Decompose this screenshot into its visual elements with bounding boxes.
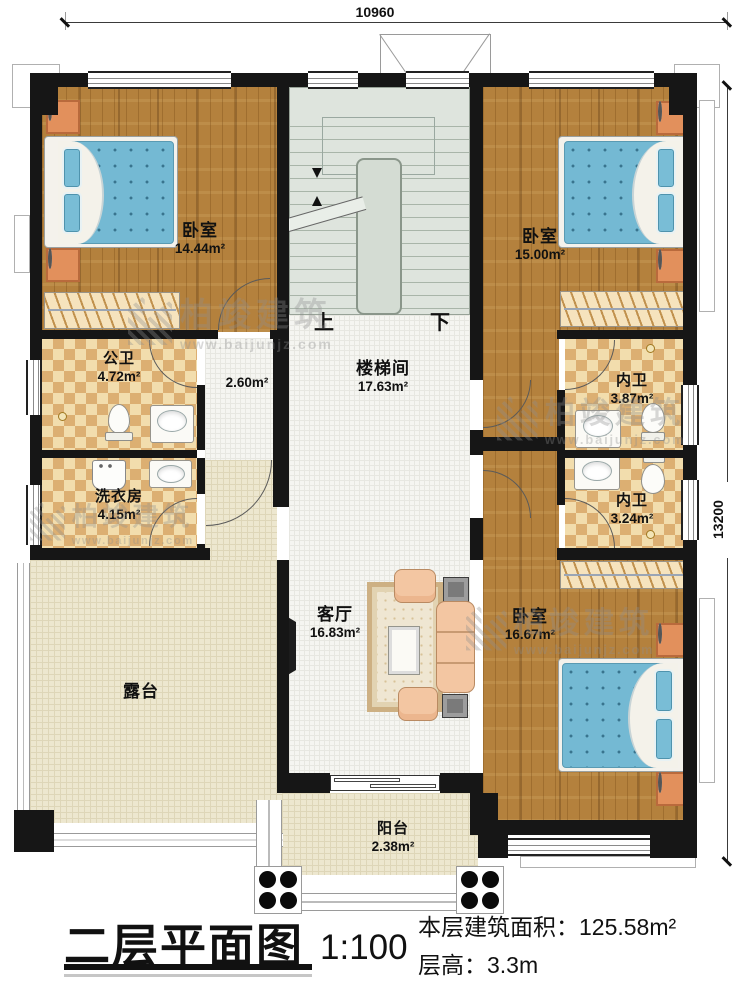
room-label-public-bath: 公卫 4.72m²: [59, 350, 179, 386]
lamp-icon: [658, 772, 662, 793]
pillow: [654, 669, 674, 713]
room-name: 公卫: [59, 350, 179, 369]
sink-vanity: [574, 456, 620, 490]
dimension-line-top: [65, 22, 727, 23]
dimension-line-right: [727, 86, 728, 862]
room-label-bedroom-top-right: 卧室 15.00m²: [480, 226, 600, 264]
floor-height-info: 层高：3.3m: [418, 946, 538, 980]
column-dot: [259, 871, 276, 888]
wall-segment: [30, 330, 218, 339]
floor-area-info: 本层建筑面积：125.58m²: [418, 908, 676, 942]
room-area: 2.38m²: [333, 839, 453, 856]
washing-machine: [92, 460, 126, 490]
wardrobe: [560, 561, 688, 589]
dimension-height-label: 13200: [710, 482, 730, 558]
toilet: [641, 464, 665, 494]
wall-corner: [650, 820, 697, 858]
floor-height-label: 层高：: [418, 952, 487, 978]
column-dot: [280, 892, 297, 909]
wall-corner: [478, 820, 508, 858]
room-label-balcony: 阳台 2.38m²: [333, 820, 453, 856]
room-name: 卧室: [480, 226, 600, 247]
wall-segment: [683, 540, 697, 825]
window: [308, 71, 358, 89]
toilet: [108, 404, 130, 434]
wall-segment: [231, 73, 308, 87]
stair-direction-arrow: [312, 168, 322, 178]
room-name: 露台: [81, 681, 201, 702]
plan-scale: 1:100: [320, 928, 408, 968]
toilet-tank: [105, 432, 133, 441]
room-label-hall: 2.60m²: [202, 375, 292, 392]
title-underline: [64, 964, 312, 970]
terrace-railing: [17, 563, 30, 825]
room-area: 15.00m²: [480, 247, 600, 264]
wall-segment: [197, 458, 205, 494]
eave-ledge: [699, 100, 715, 312]
eave-ledge: [14, 215, 30, 273]
sink-basin: [157, 465, 185, 483]
wall-segment: [557, 330, 697, 339]
wall-segment: [358, 73, 406, 87]
title-underline-shadow: [64, 974, 312, 977]
room-label-stairwell: 楼梯间 17.63m²: [323, 358, 443, 396]
room-label-bedroom-top-left: 卧室 14.44m²: [140, 220, 260, 258]
sink-vanity: [150, 405, 194, 443]
side-table: [442, 694, 468, 718]
eave-ledge: [699, 598, 715, 783]
window: [508, 838, 650, 856]
room-label-ensuite-bottom: 内卫 3.24m²: [577, 492, 687, 528]
side-table: [443, 577, 469, 602]
wall-segment: [440, 773, 483, 793]
wardrobe: [44, 292, 180, 329]
room-name: 楼梯间: [323, 358, 443, 379]
room-area: 16.67m²: [470, 627, 590, 644]
pillow: [62, 192, 82, 234]
floor-drain-icon: [58, 412, 67, 421]
terrace-column: [14, 810, 54, 852]
pillow: [62, 147, 82, 189]
room-label-laundry: 洗衣房 4.15m²: [59, 488, 179, 524]
stair-down-label: 下: [430, 306, 450, 335]
wall-segment: [557, 548, 697, 560]
armchair: [398, 687, 438, 721]
toilet-tank: [641, 432, 665, 441]
sink-vanity: [149, 460, 192, 488]
armchair: [394, 569, 436, 603]
stair-up-label: 上: [314, 306, 334, 335]
stair-direction-arrow: [312, 196, 322, 206]
room-name: 卧室: [470, 606, 590, 627]
wall-segment: [30, 450, 197, 458]
floor-area-value: 125.58m²: [579, 914, 676, 940]
wall-segment: [277, 773, 330, 793]
sliding-door-panel: [334, 778, 400, 782]
wall-segment: [470, 437, 559, 451]
column-dot: [461, 892, 478, 909]
room-area: 3.24m²: [577, 511, 687, 528]
room-area: 3.87m²: [577, 391, 687, 408]
column-dot: [482, 871, 499, 888]
wardrobe: [560, 291, 688, 327]
floor-plan-page: { "dimensions": { "width_mm": "10960", "…: [0, 0, 750, 989]
sink-basin: [157, 410, 187, 432]
wall-segment: [557, 390, 565, 505]
room-area: 2.60m²: [202, 375, 292, 392]
floor-area-label: 本层建筑面积：: [418, 914, 579, 940]
stair-landing: [290, 88, 469, 116]
lamp-icon: [658, 623, 662, 644]
balcony-column: [254, 866, 302, 914]
room-name: 阳台: [333, 820, 453, 839]
wall-segment: [273, 332, 289, 507]
wall-segment: [277, 86, 289, 339]
wall-segment: [30, 548, 210, 560]
room-name: 内卫: [577, 492, 687, 511]
window: [88, 71, 231, 89]
floor-height-value: 3.3m: [487, 952, 538, 978]
room-area: 4.15m²: [59, 507, 179, 524]
column-dot: [482, 892, 499, 909]
room-area: 17.63m²: [323, 379, 443, 396]
lamp-icon: [658, 101, 662, 122]
column-dot: [461, 871, 478, 888]
sink-basin: [583, 415, 613, 437]
column-dot: [280, 871, 297, 888]
window: [529, 71, 654, 89]
wall-segment: [470, 518, 483, 560]
sink-basin: [582, 461, 612, 481]
wall-segment: [197, 385, 205, 450]
room-label-bedroom-bottom-right: 卧室 16.67m²: [470, 606, 590, 644]
room-name: 内卫: [577, 372, 687, 391]
room-area: 16.83m²: [275, 625, 395, 642]
room-label-ensuite-top: 内卫 3.87m²: [577, 372, 687, 408]
nightstand: [46, 248, 80, 282]
sink-vanity: [575, 410, 621, 448]
window: [26, 360, 42, 415]
pillow: [654, 717, 674, 761]
lamp-icon: [658, 249, 662, 270]
room-area: 14.44m²: [140, 241, 260, 258]
wall-segment: [683, 445, 697, 480]
room-name: 客厅: [275, 604, 395, 625]
hall-floor: [205, 338, 277, 460]
room-name: 洗衣房: [59, 488, 179, 507]
gable-line: [380, 34, 490, 35]
room-label-terrace: 露台: [81, 681, 201, 702]
window: [406, 71, 469, 89]
balcony-column: [456, 866, 504, 914]
window: [26, 485, 42, 545]
lamp-icon: [48, 248, 52, 269]
pillow: [656, 192, 676, 234]
terrace-railing: [52, 833, 283, 847]
dimension-width-label: 10960: [340, 4, 410, 20]
sliding-door-panel: [370, 784, 436, 788]
column-dot: [259, 892, 276, 909]
room-name: 卧室: [140, 220, 260, 241]
floor-drain-icon: [646, 530, 655, 539]
stair-well: [356, 158, 402, 315]
wall-segment: [277, 560, 289, 793]
room-label-living: 客厅 16.83m²: [275, 604, 395, 642]
wall-segment: [30, 73, 42, 360]
pillow: [656, 147, 676, 189]
room-area: 4.72m²: [59, 369, 179, 386]
wall-segment: [557, 450, 683, 458]
floor-drain-icon: [646, 344, 655, 353]
